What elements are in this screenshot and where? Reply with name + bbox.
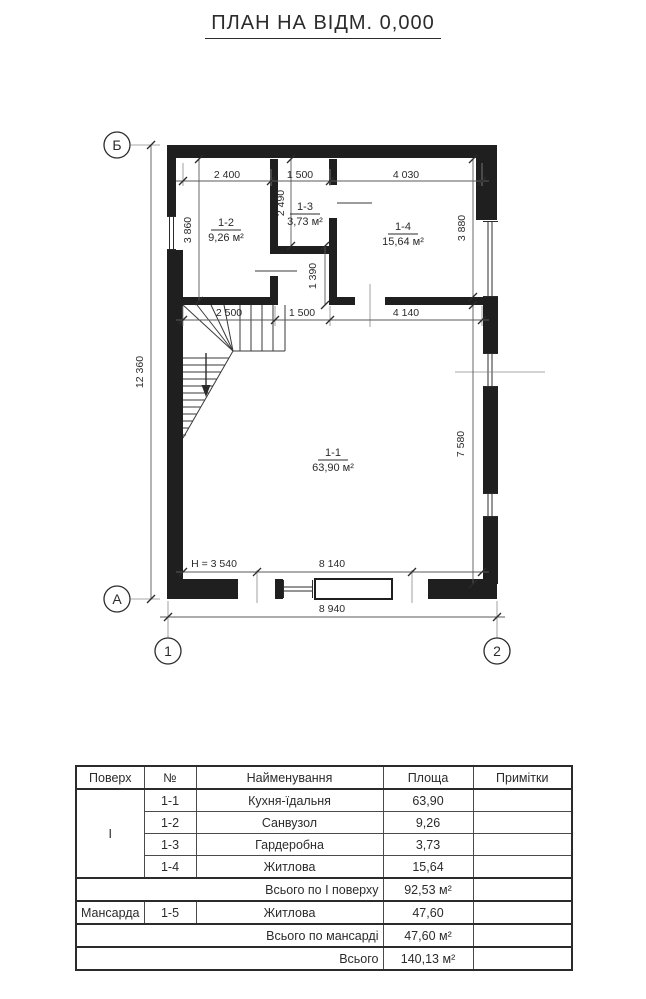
axis-label-2: 2 [493,643,501,659]
room-label-1-2: 1-2 [218,217,234,229]
total-floor1-label: Всього по I поверху [76,878,383,901]
cell-notes [473,878,572,901]
header-area: Площа [383,766,473,789]
cell-area: 15,64 [383,856,473,879]
cell-floor-mansard: Мансарда [76,901,144,924]
table-row: 1-4 Житлова 15,64 [76,856,572,879]
header-name: Найменування [196,766,383,789]
drawing-sheet: ПЛАН НА ВІДМ. 0,000 [0,0,646,999]
cell-notes [473,834,572,856]
tick-marks [147,141,501,621]
ceiling-height-note: H = 3 540 [191,558,237,570]
table-row: 1-2 Санвузол 9,26 [76,812,572,834]
total-floor1-value: 92,53 м² [383,878,473,901]
table-total-mansard-row: Всього по мансарді 47,60 м² [76,924,572,947]
dim-mid-1: 2 500 [216,307,242,319]
dim-2490: 2 490 [275,190,287,216]
cell-area: 47,60 [383,901,473,924]
header-notes: Примітки [473,766,572,789]
cell-num: 1-5 [144,901,196,924]
room-label-1-3: 1-3 [297,201,313,213]
room-area-1-4: 15,64 м² [382,236,424,248]
cell-area: 3,73 [383,834,473,856]
cell-num: 1-3 [144,834,196,856]
cell-name: Санвузол [196,812,383,834]
cell-notes [473,812,572,834]
reference-lines [257,284,545,603]
dim-top-3: 4 030 [393,169,419,181]
table-grand-total-row: Всього 140,13 м² [76,947,572,970]
cell-notes [473,924,572,947]
stairs [183,305,285,438]
room-area-1-2: 9,26 м² [208,232,244,244]
axis-label-1: 1 [164,643,172,659]
cell-name: Житлова [196,856,383,879]
cell-num: 1-4 [144,856,196,879]
cell-floor1: I [76,789,144,878]
table-row: 1-3 Гардеробна 3,73 [76,834,572,856]
floor-plan: 2 400 1 500 4 030 2 500 1 500 4 140 3 86… [0,0,646,690]
room-label-1-4: 1-4 [395,221,411,233]
table-header-row: Поверх № Найменування Площа Примітки [76,766,572,789]
dim-7580: 7 580 [455,431,467,457]
dim-1390: 1 390 [307,263,319,289]
dim-8940: 8 940 [319,603,345,615]
dim-top-2: 1 500 [287,169,313,181]
dim-3880: 3 880 [456,215,468,241]
cell-area: 9,26 [383,812,473,834]
table-row: I 1-1 Кухня-їдальня 63,90 [76,789,572,812]
table-total-floor1-row: Всього по I поверху 92,53 м² [76,878,572,901]
axis-label-b: Б [112,137,121,153]
cell-name: Житлова [196,901,383,924]
room-labels: 1-2 9,26 м² 1-3 3,73 м² 1-4 15,64 м² 1-1… [208,201,424,474]
dim-3860: 3 860 [182,217,194,243]
dimension-lines [151,145,505,617]
table-mansard-row: Мансарда 1-5 Житлова 47,60 [76,901,572,924]
total-mansard-label: Всього по мансарді [76,924,383,947]
cell-notes [473,789,572,812]
dim-mid-3: 4 140 [393,307,419,319]
area-table: Поверх № Найменування Площа Примітки I 1… [75,765,573,971]
cell-num: 1-2 [144,812,196,834]
stairs-direction-arrow [202,353,211,397]
room-label-1-1: 1-1 [325,447,341,459]
grand-total-value: 140,13 м² [383,947,473,970]
cell-num: 1-1 [144,789,196,812]
grand-total-label: Всього [76,947,383,970]
cell-name: Гардеробна [196,834,383,856]
room-area-1-3: 3,73 м² [287,216,323,228]
dim-8140: 8 140 [319,558,345,570]
total-mansard-value: 47,60 м² [383,924,473,947]
cell-notes [473,947,572,970]
cell-area: 63,90 [383,789,473,812]
cell-name: Кухня-їдальня [196,789,383,812]
header-number: № [144,766,196,789]
header-floor: Поверх [76,766,144,789]
cell-notes [473,901,572,924]
room-area-1-1: 63,90 м² [312,462,354,474]
cell-notes [473,856,572,879]
dim-12360: 12 360 [134,356,146,388]
axis-label-a: А [112,591,122,607]
dim-mid-2: 1 500 [289,307,315,319]
dim-top-1: 2 400 [214,169,240,181]
